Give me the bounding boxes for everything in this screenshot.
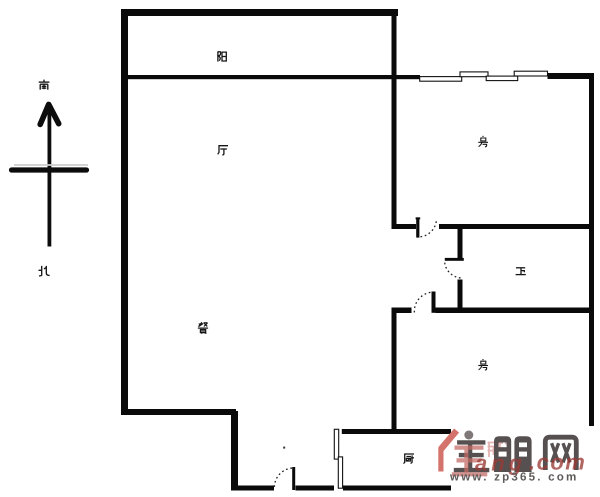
svg-text:www. zp365. com: www. zp365. com [449,471,579,484]
